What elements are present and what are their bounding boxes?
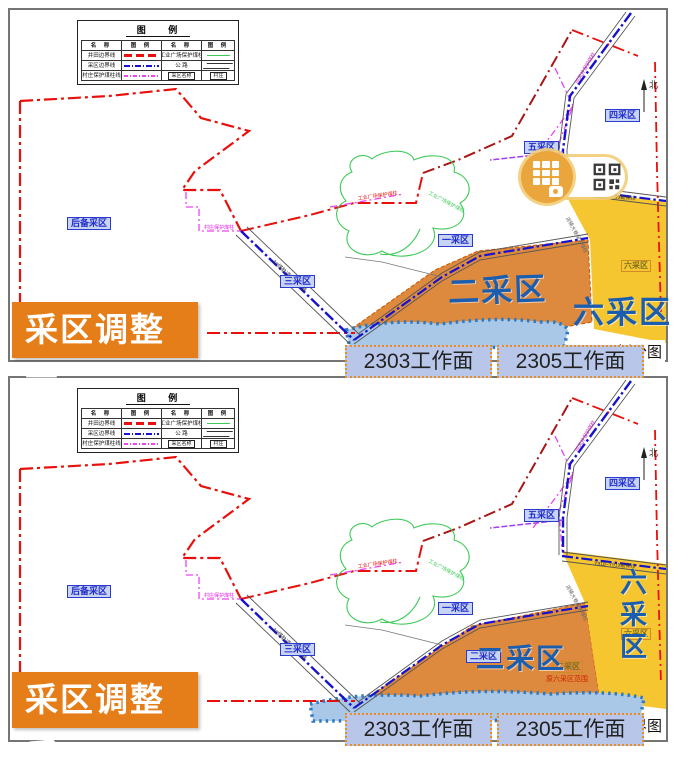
legend-symbol-blue-dashdot [122, 429, 162, 439]
title-badge-before: 采区调整前 [12, 302, 198, 358]
legend-symbol-magenta-dash [122, 439, 162, 448]
legend-symbol-green-line [202, 419, 235, 429]
map-annotation: 工业广场保护煤柱 [427, 190, 466, 215]
qr-code-icon [593, 163, 621, 191]
legend-symbol-red-dash [122, 51, 162, 61]
map-annotation: 回风井保护煤柱 [574, 51, 598, 85]
legend-label: 村庄保护煤柱线 [82, 71, 122, 80]
legend-symbol-blue-dashdot [122, 61, 162, 71]
legend-header: 名 称 [82, 41, 122, 51]
legend-boxed-symbol: 村庄 [202, 71, 235, 80]
map-panel-after: 北村庄保护煤柱工业广场保护煤柱3#煤轨道运输大巷Y918~Y919勘探线运输大巷… [8, 376, 668, 742]
legend: 图 例 名 称 图 例 名 称 图 例 井田边界线 工业广场保护煤柱 采区边界线… [77, 20, 239, 85]
map-annotation: 工业广场保护煤柱 [357, 189, 398, 202]
north-arrow-icon [641, 447, 647, 458]
label-area-five: 五采区 [524, 509, 559, 522]
legend-label: 井田边界线 [82, 419, 122, 429]
watermark-badge [521, 151, 627, 203]
map-annotation: 村庄保护煤柱 [204, 592, 234, 599]
legend-label: 公 路 [162, 429, 202, 439]
legend-label: 井田边界线 [82, 51, 122, 61]
legend-table: 名 称 图 例 名 称 图 例 井田边界线 工业广场保护煤柱 采区边界线 公 路… [81, 40, 235, 81]
label-area-four: 四采区 [605, 477, 640, 490]
legend-boxed-label: 采区名称 [162, 439, 202, 448]
label-area-one: 一采区 [438, 602, 473, 615]
workface-2305-label: 2305工作面 [497, 713, 644, 746]
legend-title: 图 例 [126, 23, 190, 37]
legend-symbol-road [202, 429, 235, 439]
label-area-two-large: 二采区 [447, 263, 548, 311]
map-annotation: 村庄保护煤柱 [204, 224, 234, 231]
speech-bubble-icon [549, 186, 563, 197]
map-annotation: 北 [649, 448, 658, 458]
north-arrow-icon [641, 79, 647, 90]
label-area-three: 三采区 [280, 275, 315, 288]
legend-header: 图 例 [202, 41, 235, 51]
legend-header: 名 称 [82, 409, 122, 419]
legend-symbol-red-dash [122, 419, 162, 429]
legend-boxed-label: 采区名称 [162, 71, 202, 80]
label-area-three: 三采区 [280, 643, 315, 656]
legend-table: 名 称 图 例 名 称 图 例 井田边界线 工业广场保护煤柱 采区边界线 公 路… [81, 408, 235, 449]
label-area-six-large: 六采区 [573, 287, 672, 332]
label-area-four: 四采区 [605, 109, 640, 122]
figure-mining-area-comparison: 北村庄保护煤柱工业广场保护煤柱3#煤轨道运输大巷Y918~Y919勘探线运输大巷… [0, 0, 676, 763]
label-reserve-area: 后备采区 [67, 217, 111, 230]
legend-symbol-magenta-dash [122, 71, 162, 80]
label-area-six-small: 六采区 [621, 260, 651, 272]
legend-header: 图 例 [122, 41, 162, 51]
title-badge-after: 采区调整后 [12, 672, 198, 728]
label-reserve-area: 后备采区 [67, 585, 111, 598]
workface-2303-label: 2303工作面 [345, 345, 492, 378]
legend-symbol-green-line [202, 51, 235, 61]
app-grid-icon [521, 151, 573, 203]
map-annotation: 北 [649, 80, 658, 90]
workface-labels-before: 2303工作面 2305工作面 [345, 345, 644, 378]
legend-symbol-road [202, 61, 235, 71]
legend-label: 采区边界线 [82, 61, 122, 71]
legend: 图 例 名 称 图 例 名 称 图 例 井田边界线 工业广场保护煤柱 采区边界线… [77, 388, 239, 453]
workface-labels-after: 2303工作面 2305工作面 [345, 713, 644, 746]
legend-label: 公 路 [162, 61, 202, 71]
map-annotation: 工业广场保护煤柱 [427, 558, 466, 583]
map-annotation: 回风井保护煤柱 [574, 419, 598, 453]
legend-label: 采区边界线 [82, 429, 122, 439]
grid-icon [533, 161, 559, 185]
legend-boxed-symbol: 村庄 [202, 439, 235, 448]
legend-header: 图 例 [202, 409, 235, 419]
label-area-six-large-vertical: 六采区 [612, 568, 651, 664]
legend-title: 图 例 [126, 391, 190, 405]
legend-header: 名 称 [162, 41, 202, 51]
label-area-one: 一采区 [438, 234, 473, 247]
map-annotation: 工业广场保护煤柱 [357, 557, 398, 570]
legend-label: 工业广场保护煤柱 [162, 51, 202, 61]
legend-label: 村庄保护煤柱线 [82, 439, 122, 448]
legend-header: 名 称 [162, 409, 202, 419]
label-area-two-large: 二采区 [476, 637, 566, 677]
workface-2305-label: 2305工作面 [497, 345, 644, 378]
workface-2303-label: 2303工作面 [345, 713, 492, 746]
legend-label: 工业广场保护煤柱 [162, 419, 202, 429]
legend-header: 图 例 [122, 409, 162, 419]
